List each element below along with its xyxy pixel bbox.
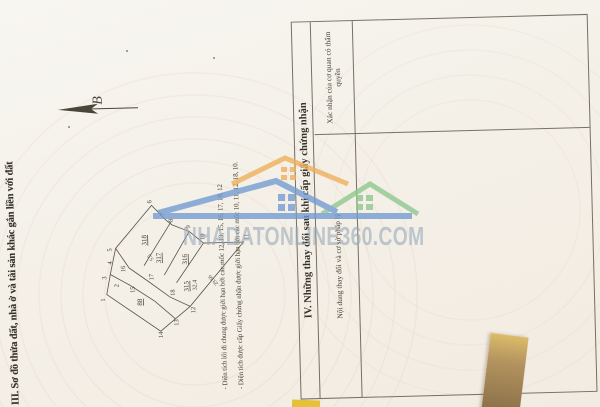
svg-text:13: 13 <box>173 319 180 326</box>
svg-text:7: 7 <box>159 212 166 216</box>
scan-speck <box>68 126 70 128</box>
svg-text:317: 317 <box>154 252 162 263</box>
svg-text:318: 318 <box>140 234 148 245</box>
svg-text:2: 2 <box>113 283 120 286</box>
scan-speck <box>213 57 215 59</box>
svg-text:14: 14 <box>157 330 164 337</box>
svg-text:1: 1 <box>99 298 106 301</box>
svg-text:10: 10 <box>199 233 206 240</box>
svg-text:17: 17 <box>148 273 155 280</box>
svg-text:5: 5 <box>106 248 113 251</box>
svg-text:12: 12 <box>190 306 197 313</box>
scanned-certificate-page: III. Sơ đồ thửa đất, nhà ở và tài sản kh… <box>0 0 600 407</box>
svg-text:3: 3 <box>101 276 108 279</box>
svg-text:11: 11 <box>243 233 250 239</box>
svg-text:9: 9 <box>185 225 192 228</box>
svg-text:4: 4 <box>106 260 113 264</box>
north-arrow: B <box>57 94 137 114</box>
svg-text:6: 6 <box>146 199 153 203</box>
section-iv-table: IV. Những thay đổi sau khi cấp giấy chứn… <box>290 13 597 399</box>
north-label: B <box>90 95 105 104</box>
scan-speck <box>126 50 128 52</box>
svg-text:315: 315 <box>182 280 190 291</box>
svg-text:88: 88 <box>135 298 143 306</box>
column-header-authority-confirmation: Xác nhận của cơ quan có thẩm quyền <box>311 21 354 134</box>
svg-text:15: 15 <box>129 286 136 293</box>
svg-text:16: 16 <box>120 264 127 271</box>
svg-text:8: 8 <box>167 218 174 221</box>
svg-text:18: 18 <box>169 289 176 296</box>
svg-text:316: 316 <box>180 253 188 264</box>
yellow-paper-sliver <box>292 400 320 407</box>
column-header-content-change: Nội dung thay đổi và cơ sở pháp lý <box>314 134 361 398</box>
parcel-315-area: 32.4 <box>192 279 198 290</box>
